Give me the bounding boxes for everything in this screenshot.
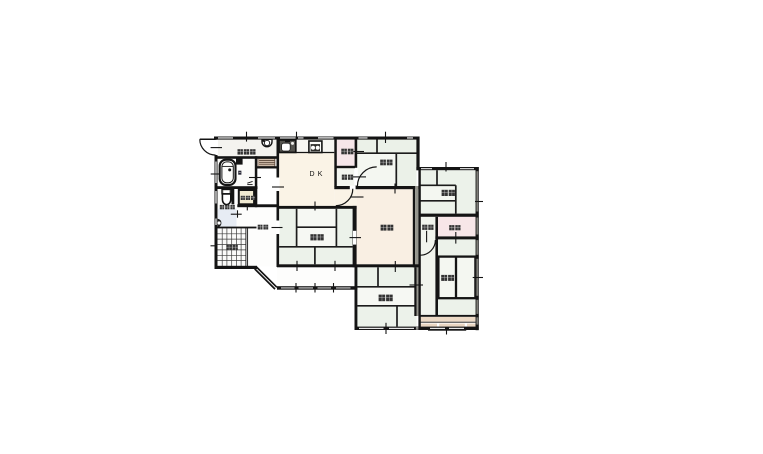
svg-text:DK: DK	[310, 171, 326, 178]
